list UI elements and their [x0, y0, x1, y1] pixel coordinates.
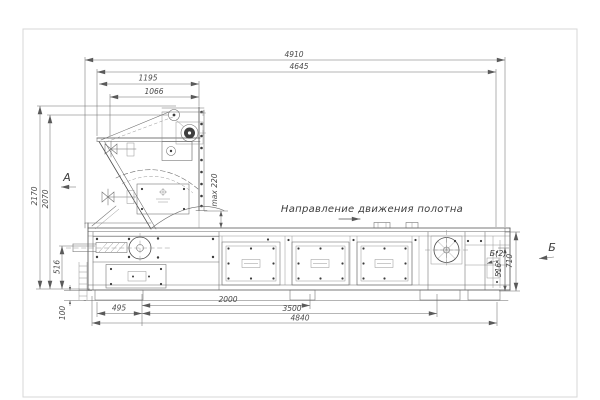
dim-516-left: 516	[53, 260, 62, 275]
hopper	[92, 107, 224, 229]
conveyor-body	[85, 223, 510, 291]
direction-label: Направление движения полотна	[281, 204, 463, 215]
drive-access-panel	[106, 265, 166, 289]
drum-arc-dashed	[116, 170, 198, 189]
machine-base	[84, 290, 508, 301]
handwheel-lower	[102, 189, 136, 205]
dim-1195: 1195	[138, 74, 157, 83]
dim-516-right: 516	[494, 263, 503, 278]
dim-max-220: max 220	[210, 173, 219, 206]
ladder	[79, 262, 87, 300]
dim-2170: 2170	[30, 186, 39, 205]
dim-4910: 4910	[284, 50, 303, 59]
dim-3500: 3500	[282, 304, 301, 313]
dimension-labels: 4910 4645 1195 1066 2170 2070 516 100 ma…	[30, 50, 514, 323]
inspection-panel-2	[292, 242, 349, 285]
dim-2070: 2070	[41, 189, 50, 208]
view-label-a: А	[62, 171, 71, 184]
dim-1066: 1066	[144, 87, 163, 96]
view-label-b2: Б(2)	[490, 249, 507, 258]
tail-unit-right	[425, 228, 510, 290]
inspection-panel-3	[357, 242, 412, 285]
drawing-sheet: 4910 4645 1195 1066 2170 2070 516 100 ma…	[0, 0, 600, 400]
dim-100: 100	[58, 306, 67, 321]
dim-4840: 4840	[290, 314, 309, 323]
dimension-lines	[36, 57, 520, 326]
handwheel-upper	[105, 141, 136, 157]
drive-shaft	[73, 243, 127, 253]
chute-arc	[151, 206, 224, 228]
belt-bracket	[374, 223, 418, 229]
dim-2000: 2000	[218, 295, 237, 304]
motor-mount	[162, 142, 192, 161]
dim-495: 495	[112, 304, 127, 313]
top-pulley-assembly	[101, 108, 206, 144]
drive-pulley	[129, 237, 151, 259]
view-b-arrow	[539, 257, 554, 259]
inspection-panel-1	[222, 242, 280, 285]
view-label-b: Б	[548, 241, 556, 254]
dim-4645: 4645	[289, 62, 308, 71]
annotations: Направление движения полотна А Б Б(2)	[61, 171, 556, 264]
